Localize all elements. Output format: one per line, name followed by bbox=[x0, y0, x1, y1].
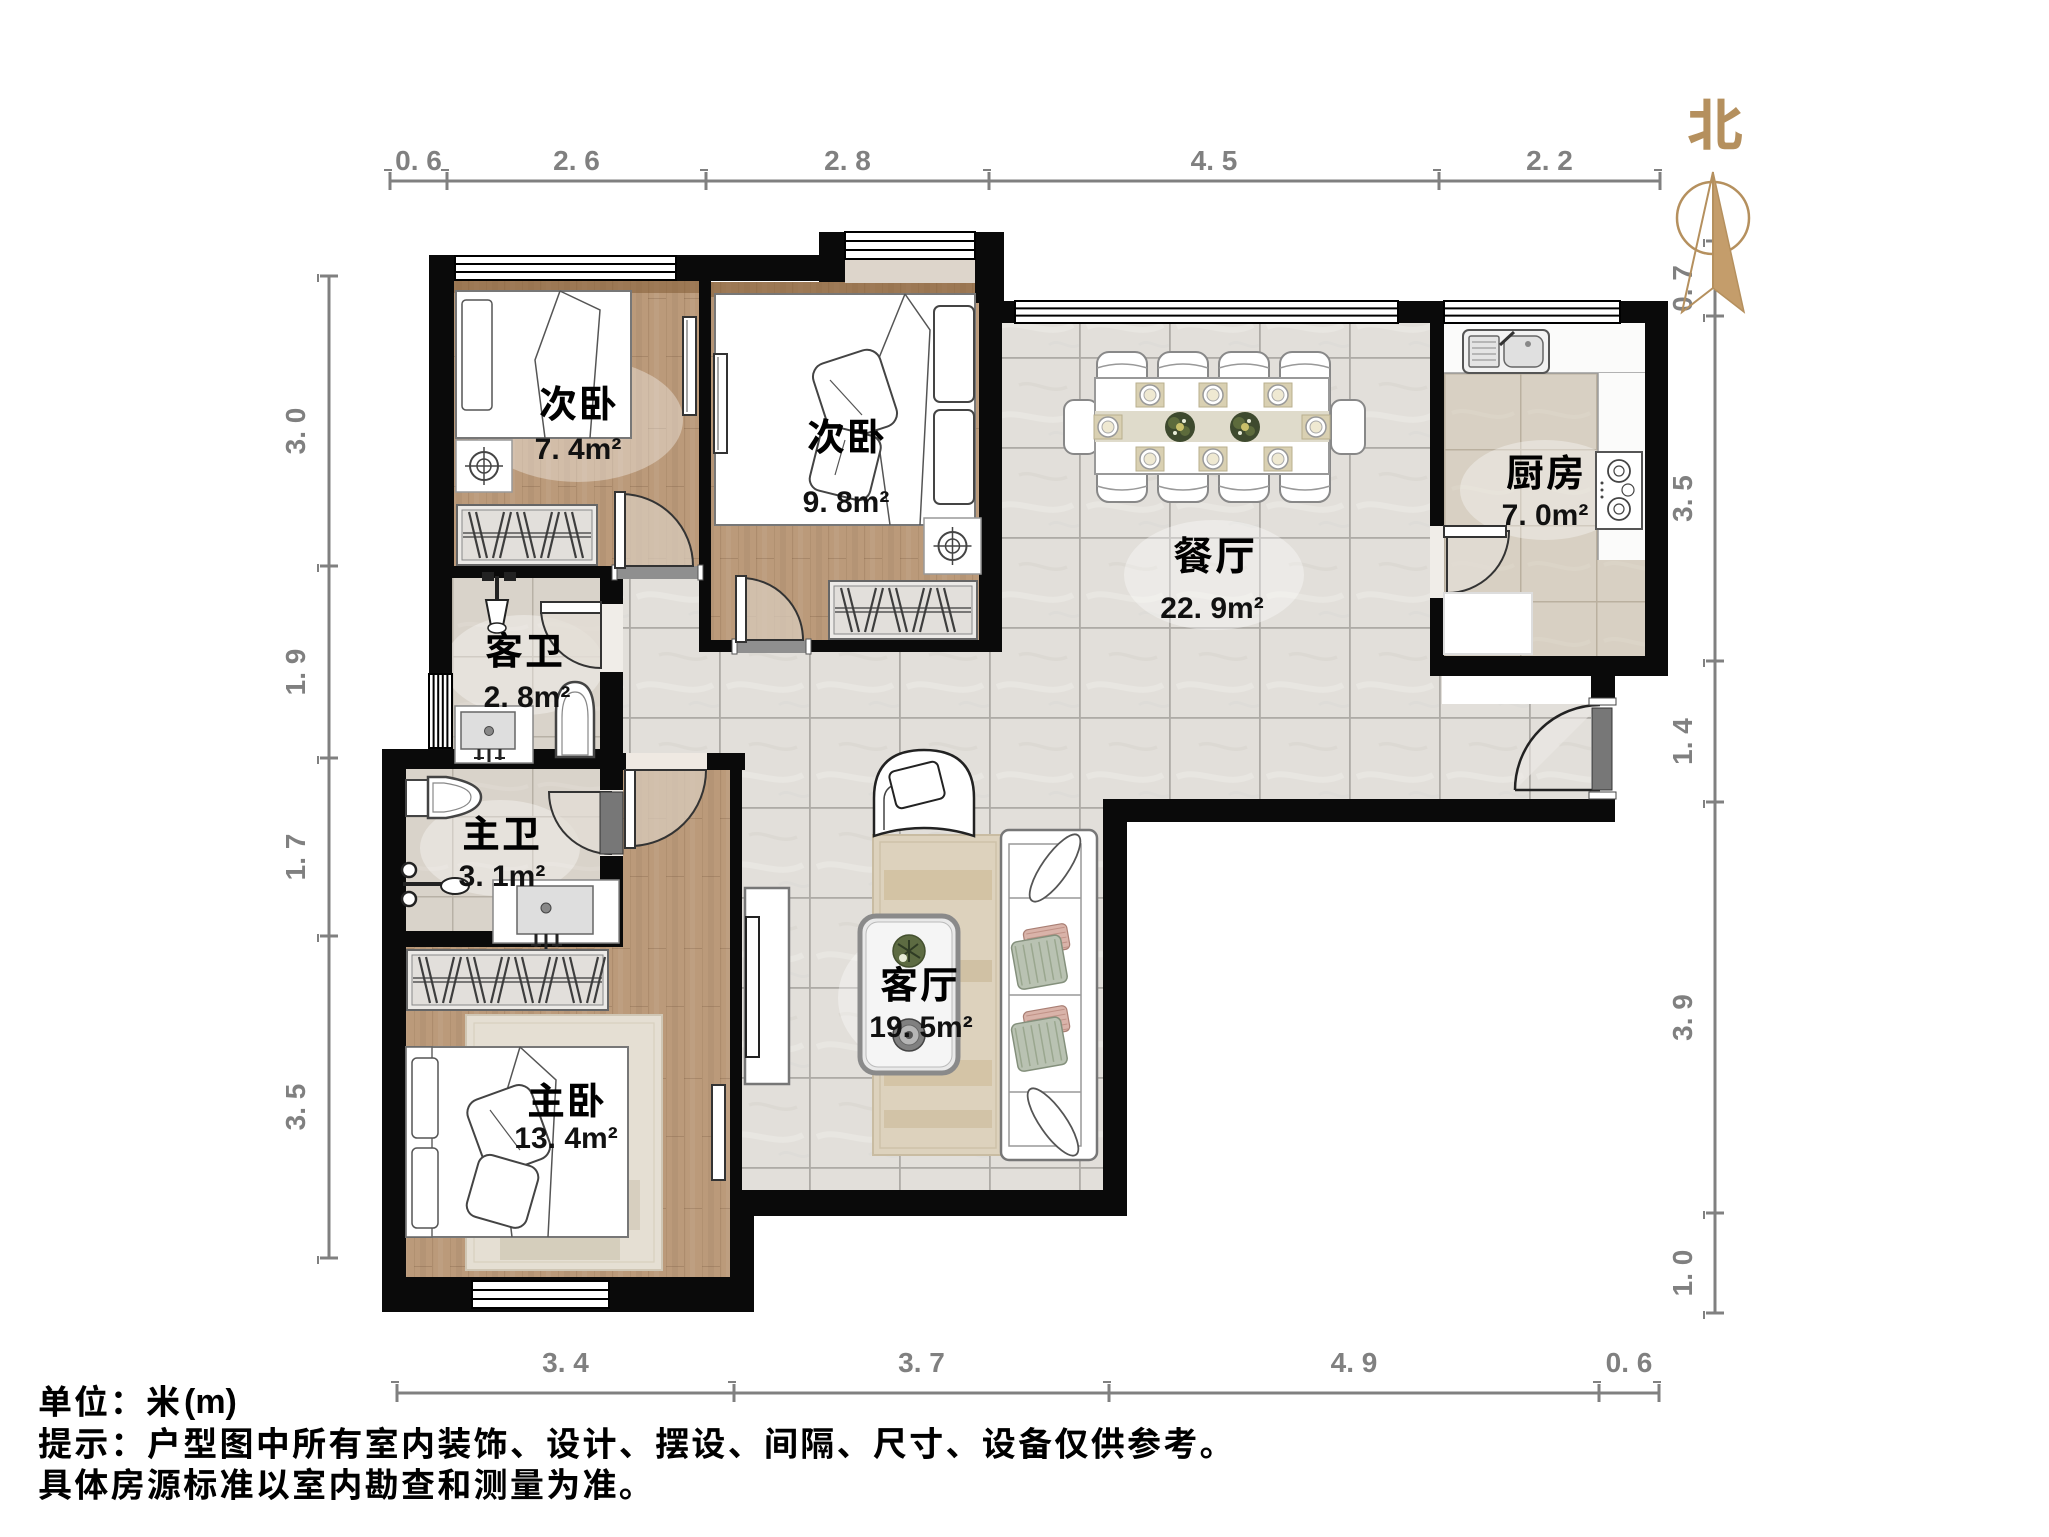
svg-text:3. 1m²: 3. 1m² bbox=[459, 860, 546, 893]
svg-text:2. 6: 2. 6 bbox=[553, 145, 600, 176]
svg-text:19. 5m²: 19. 5m² bbox=[869, 1011, 972, 1044]
svg-text:2. 8m²: 2. 8m² bbox=[484, 681, 571, 714]
svg-text:(m): (m) bbox=[184, 1383, 237, 1421]
svg-text:0. 6: 0. 6 bbox=[395, 145, 442, 176]
svg-text:7. 4m²: 7. 4m² bbox=[535, 433, 622, 466]
svg-text:1. 4: 1. 4 bbox=[1667, 718, 1698, 765]
svg-text:0. 6: 0. 6 bbox=[1606, 1347, 1653, 1378]
svg-text:3. 4: 3. 4 bbox=[542, 1347, 589, 1378]
svg-text:1. 7: 1. 7 bbox=[280, 834, 311, 881]
svg-text:9. 8m²: 9. 8m² bbox=[803, 486, 890, 519]
svg-text:7. 0m²: 7. 0m² bbox=[1502, 499, 1589, 532]
svg-text:3. 5: 3. 5 bbox=[280, 1084, 311, 1131]
svg-text:3. 9: 3. 9 bbox=[1667, 994, 1698, 1041]
svg-text:22. 9m²: 22. 9m² bbox=[1160, 592, 1263, 625]
svg-text:13. 4m²: 13. 4m² bbox=[514, 1122, 617, 1155]
svg-text:3. 0: 3. 0 bbox=[280, 408, 311, 455]
svg-text:2. 8: 2. 8 bbox=[824, 145, 871, 176]
svg-text:1. 0: 1. 0 bbox=[1667, 1250, 1698, 1297]
svg-text:0. 7: 0. 7 bbox=[1667, 265, 1698, 312]
svg-text:1. 9: 1. 9 bbox=[280, 649, 311, 696]
svg-text:4. 9: 4. 9 bbox=[1331, 1347, 1378, 1378]
svg-text:3. 5: 3. 5 bbox=[1667, 475, 1698, 522]
svg-text:3. 7: 3. 7 bbox=[898, 1347, 945, 1378]
svg-text:2. 2: 2. 2 bbox=[1526, 145, 1573, 176]
svg-text:4. 5: 4. 5 bbox=[1191, 145, 1238, 176]
